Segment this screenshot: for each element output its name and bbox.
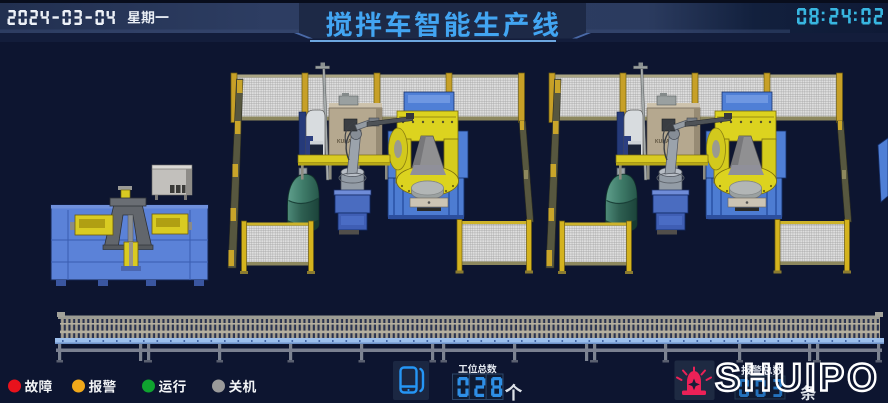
svg-text:SHUIPO: SHUIPO: [715, 357, 880, 400]
